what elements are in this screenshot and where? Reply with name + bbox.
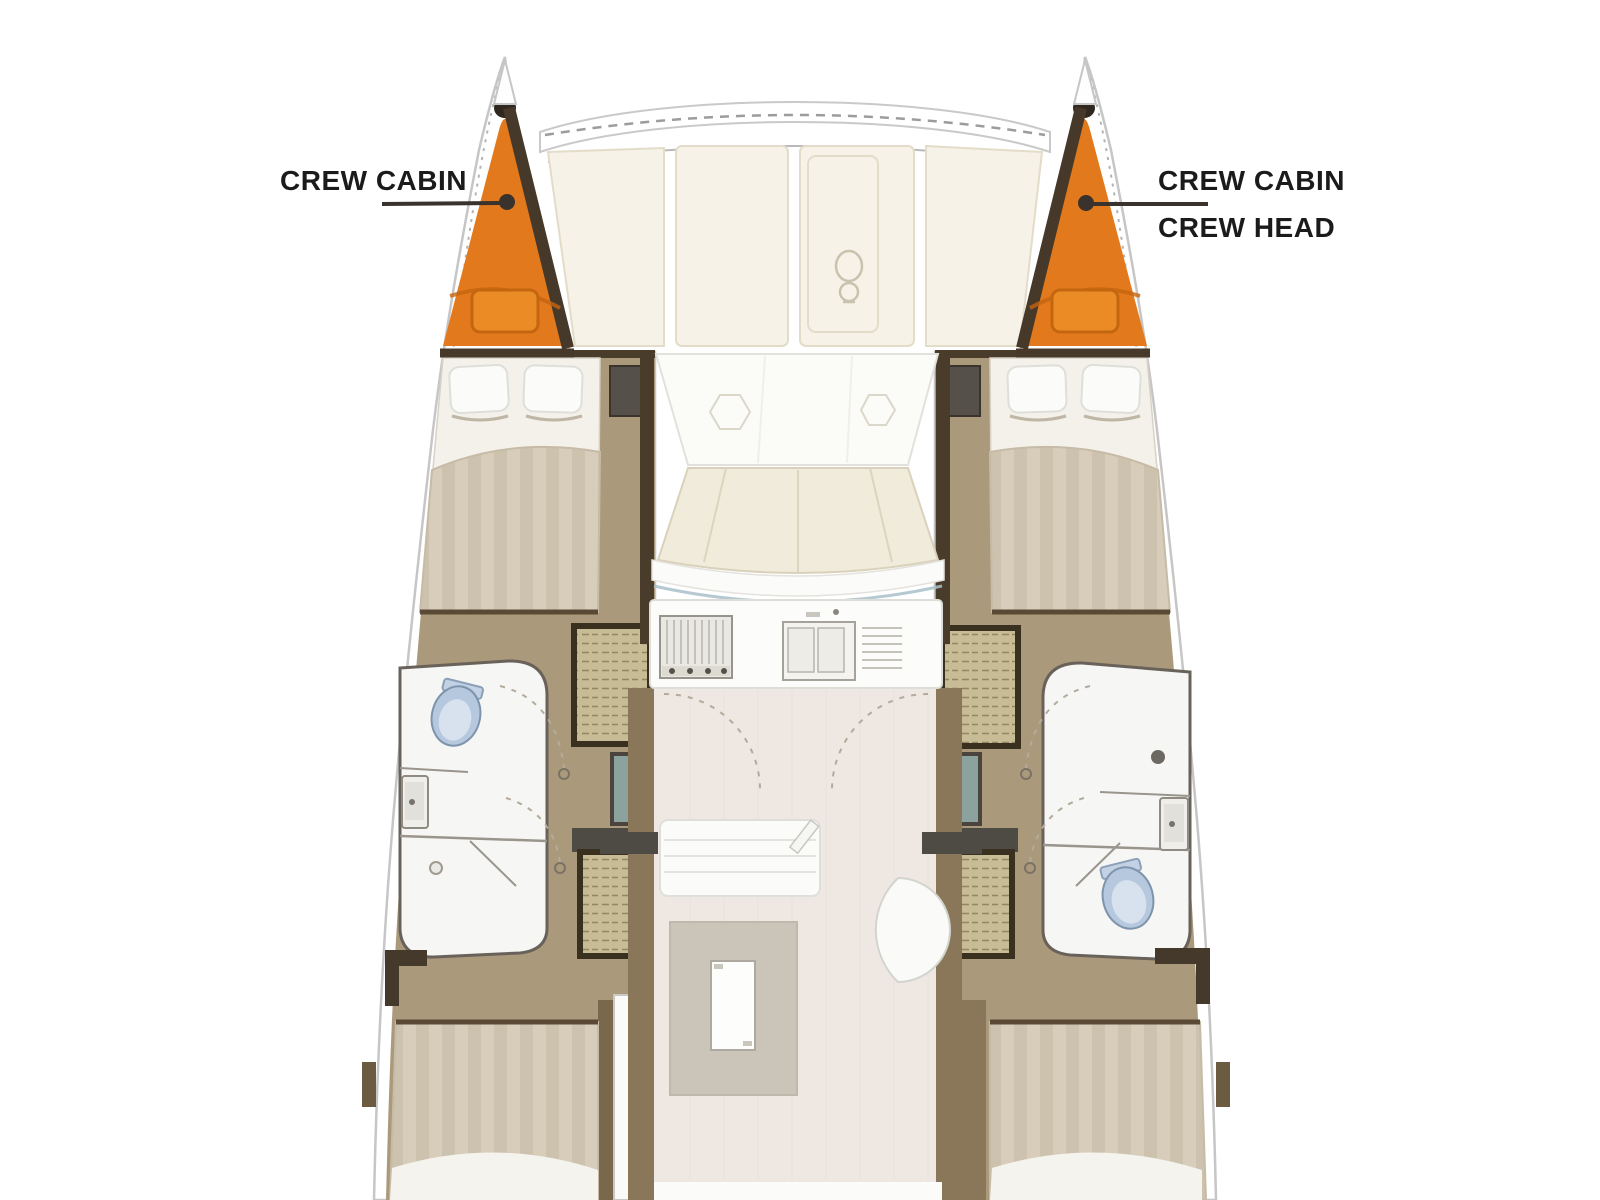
floor-plan-graphic: [0, 0, 1600, 1200]
stove-icon: [660, 616, 732, 678]
faucet-icon: [1169, 821, 1175, 827]
port-leader-dot: [499, 194, 515, 210]
aft-bulkhead: [385, 950, 399, 1006]
table-hinge: [743, 1041, 752, 1046]
galley: [650, 600, 942, 688]
pillow: [523, 365, 583, 413]
bed-duvet: [990, 447, 1170, 612]
port-leader-line: [382, 203, 500, 204]
port-galley-bulkhead: [600, 832, 658, 854]
cockpit-sill: [654, 1182, 942, 1200]
starboard-forward-berth: [990, 358, 1170, 612]
port-crew-cabin-label: CREW CABIN: [280, 166, 467, 195]
shower-drain-icon: [430, 862, 442, 874]
foredeck: [540, 102, 1050, 346]
dinette-bench: [660, 820, 820, 896]
catamaran-deck-plan: CREW CABIN CREW CABIN CREW HEAD: [0, 0, 1600, 1200]
deck-panel: [676, 146, 788, 346]
bed-duvet: [420, 447, 600, 612]
table-hinge: [714, 964, 723, 969]
annotation-leaders: [382, 194, 1208, 211]
dinette: [660, 820, 820, 1095]
deck-panel: [800, 146, 914, 346]
forward-crossbeam: [540, 102, 1050, 152]
port-forward-berth: [420, 358, 600, 612]
pillow: [1007, 365, 1067, 413]
table-leaf: [711, 961, 755, 1050]
starboard-head-bathroom: [1043, 663, 1190, 959]
pillow: [449, 365, 509, 414]
starboard-crew-cabin-label: CREW CABIN: [1158, 166, 1345, 195]
shower-control-icon: [1151, 750, 1165, 764]
hull-fitting: [362, 1062, 376, 1107]
aft-bulkhead: [1196, 948, 1210, 1004]
starboard-galley-bulkhead: [922, 832, 982, 854]
crew-pillow: [472, 290, 538, 332]
saloon: [600, 352, 982, 1200]
faucet-icon: [409, 799, 415, 805]
starboard-crew-head-label: CREW HEAD: [1158, 213, 1335, 242]
crew-pillow: [1052, 290, 1118, 332]
pillow: [1081, 365, 1141, 414]
starboard-leader-dot: [1078, 195, 1094, 211]
port-side-wall: [628, 688, 654, 1200]
aft-partition: [598, 1000, 613, 1200]
hull-fitting: [1216, 1062, 1230, 1107]
port-head-bathroom: [400, 661, 547, 957]
